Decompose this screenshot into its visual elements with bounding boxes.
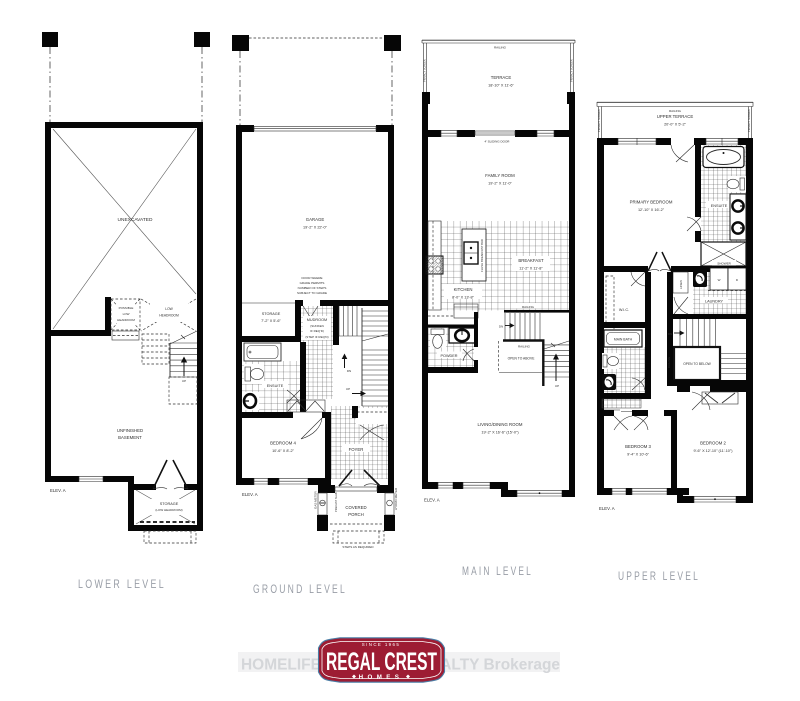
svg-text:TERRACE: TERRACE: [491, 75, 512, 80]
svg-text:18'-10" X 11'-6": 18'-10" X 11'-6": [488, 84, 514, 88]
svg-text:LOW: LOW: [165, 307, 173, 311]
svg-text:ENSUITE: ENSUITE: [711, 204, 728, 208]
svg-text:NUMBER OF STEPS: NUMBER OF STEPS: [298, 286, 327, 290]
svg-text:(SUNKEN: (SUNKEN: [310, 324, 324, 328]
svg-text:8'-0" X 13'-8": 8'-0" X 13'-8": [452, 296, 475, 300]
svg-text:LAUNDRY: LAUNDRY: [705, 300, 724, 304]
svg-text:UP: UP: [555, 384, 559, 388]
svg-text:MUDROOM: MUDROOM: [307, 318, 327, 322]
svg-text:STEPS AS REQUIRED: STEPS AS REQUIRED: [342, 545, 374, 549]
svg-text:HEADROOM: HEADROOM: [159, 314, 179, 318]
svg-text:PRIVACY SCREEN: PRIVACY SCREEN: [423, 59, 427, 82]
svg-text:COVERED: COVERED: [345, 505, 366, 510]
svg-text:BEDROOM 4: BEDROOM 4: [270, 441, 296, 446]
svg-text:DN: DN: [347, 369, 351, 373]
svg-text:SUBJECT TO GRADE: SUBJECT TO GRADE: [297, 291, 327, 295]
svg-text:MAIN BATH: MAIN BATH: [614, 338, 633, 342]
svg-text:BREAKFAST: BREAKFAST: [518, 258, 544, 263]
svg-text:(LOW HEADROOM): (LOW HEADROOM): [155, 508, 182, 512]
svg-text:SHOWER: SHOWER: [717, 262, 731, 266]
svg-text:BASEMENT: BASEMENT: [118, 435, 142, 440]
svg-text:HOMES: HOMES: [359, 674, 404, 681]
svg-text:(STEP IF REQ'D): (STEP IF REQ'D): [305, 335, 328, 339]
svg-text:RAILING: RAILING: [518, 345, 531, 349]
svg-text:UPPER LEVEL: UPPER LEVEL: [618, 571, 700, 583]
svg-text:12'-10" X 16'-2": 12'-10" X 16'-2": [638, 208, 665, 212]
svg-text:DOOR WHERE: DOOR WHERE: [302, 276, 323, 280]
svg-text:DN: DN: [668, 332, 672, 336]
svg-text:LOWER LEVEL: LOWER LEVEL: [78, 579, 166, 591]
svg-text:GAS METER: GAS METER: [314, 490, 318, 509]
svg-text:ELEV. A: ELEV. A: [424, 498, 440, 503]
svg-text:9'-4" X 10'-6": 9'-4" X 10'-6": [627, 453, 650, 457]
svg-text:BEDROOM 3: BEDROOM 3: [625, 444, 651, 449]
svg-text:GROUND LEVEL: GROUND LEVEL: [253, 584, 347, 596]
svg-text:UNEXCAVATED: UNEXCAVATED: [118, 217, 153, 223]
svg-text:OPEN TO BELOW: OPEN TO BELOW: [683, 362, 711, 366]
svg-text:GARAGE: GARAGE: [306, 217, 325, 222]
svg-text:FLUSH BREAKFAST BAR: FLUSH BREAKFAST BAR: [480, 239, 484, 272]
svg-text:POSSIBLE: POSSIBLE: [119, 306, 134, 310]
svg-text:20'-0" X 5'-2": 20'-0" X 5'-2": [664, 123, 687, 127]
svg-text:4' SLIDING DOOR: 4' SLIDING DOOR: [485, 140, 511, 144]
svg-text:ENSUITE: ENSUITE: [267, 384, 284, 388]
svg-text:REGAL CREST: REGAL CREST: [326, 648, 437, 676]
svg-text:W: W: [718, 278, 721, 282]
svg-text:RAILING: RAILING: [522, 305, 535, 309]
svg-text:RAILING: RAILING: [669, 109, 682, 113]
svg-text:FAMILY ROOM: FAMILY ROOM: [485, 173, 515, 178]
svg-text:UNFINISHED: UNFINISHED: [117, 428, 143, 433]
svg-text:UPPER TERRACE: UPPER TERRACE: [657, 114, 694, 119]
svg-text:PRECAST SLAB: PRECAST SLAB: [334, 492, 338, 512]
svg-text:HYDRO METER: HYDRO METER: [394, 487, 398, 510]
svg-text:BEDROOM 2: BEDROOM 2: [700, 441, 726, 446]
svg-text:RAILING: RAILING: [667, 357, 671, 368]
svg-text:19'-2" X 16'-6" (15'-0"): 19'-2" X 16'-6" (15'-0"): [481, 431, 519, 435]
svg-text:STORAGE: STORAGE: [262, 312, 281, 316]
svg-text:KITCHEN: KITCHEN: [454, 287, 473, 292]
svg-text:10'-6" X 8'-2": 10'-6" X 8'-2": [272, 449, 295, 453]
svg-text:PRIVACY SCREEN: PRIVACY SCREEN: [747, 109, 751, 132]
svg-text:LOW: LOW: [123, 312, 130, 316]
svg-text:PRIVACY SCREEN: PRIVACY SCREEN: [570, 59, 574, 82]
svg-text:FOYER: FOYER: [349, 447, 364, 452]
svg-text:PRIMARY BEDROOM: PRIMARY BEDROOM: [630, 200, 673, 205]
svg-text:7'-2" X 5'-6": 7'-2" X 5'-6": [261, 319, 281, 323]
svg-text:UP: UP: [346, 387, 350, 391]
svg-text:11'-2" X 11'-8": 11'-2" X 11'-8": [519, 267, 543, 271]
svg-text:UP: UP: [182, 379, 186, 383]
svg-text:9'-6" X 12'-10" (11'-10"): 9'-6" X 12'-10" (11'-10"): [693, 449, 733, 453]
svg-text:LIVING/DINING ROOM: LIVING/DINING ROOM: [478, 422, 523, 427]
svg-text:ELEV. A: ELEV. A: [50, 488, 66, 493]
svg-text:PORCH: PORCH: [348, 512, 364, 517]
svg-text:OPEN TO ABOVE: OPEN TO ABOVE: [508, 357, 536, 361]
svg-text:DN: DN: [499, 325, 503, 329]
svg-text:GRADE PERMITS: GRADE PERMITS: [300, 281, 325, 285]
svg-text:19'-2" X 22'-0": 19'-2" X 22'-0": [303, 226, 328, 230]
svg-text:HEADROOM: HEADROOM: [117, 318, 135, 322]
svg-text:W.I.C.: W.I.C.: [619, 308, 629, 312]
svg-text:LINEN: LINEN: [679, 280, 683, 289]
svg-text:RAILING: RAILING: [494, 46, 507, 50]
svg-text:IF REQ'D): IF REQ'D): [310, 329, 324, 333]
svg-text:ELEV. A: ELEV. A: [599, 506, 615, 511]
svg-text:PRIVACY SCREEN: PRIVACY SCREEN: [597, 109, 601, 132]
svg-text:19'-2" X 11'-0": 19'-2" X 11'-0": [488, 182, 512, 186]
svg-text:STORAGE: STORAGE: [160, 502, 179, 506]
svg-text:ELEV. A: ELEV. A: [242, 492, 258, 497]
svg-text:SINCE 1965: SINCE 1965: [362, 642, 400, 647]
svg-text:POWDER: POWDER: [440, 354, 457, 358]
svg-text:MAIN LEVEL: MAIN LEVEL: [462, 566, 533, 578]
